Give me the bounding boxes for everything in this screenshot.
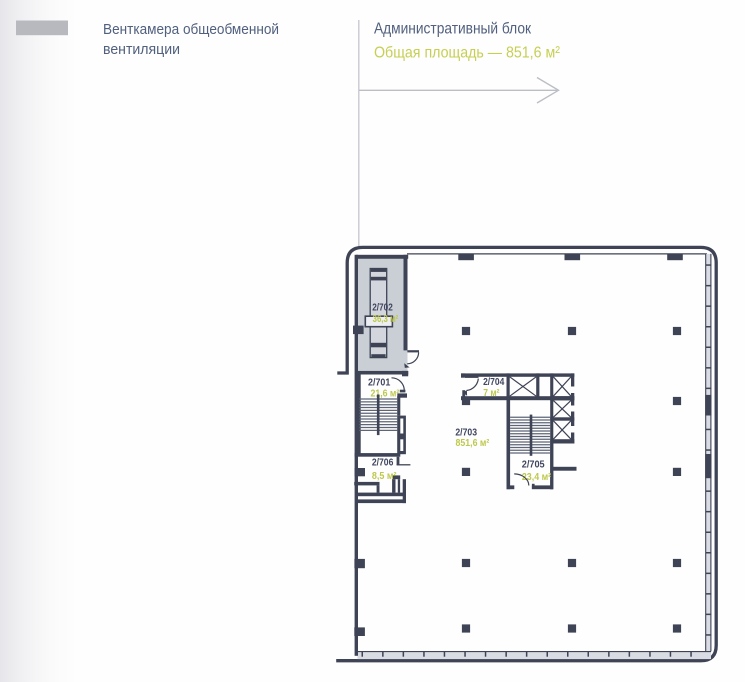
svg-text:21,6 м²: 21,6 м² xyxy=(370,387,399,399)
svg-text:вентиляции: вентиляции xyxy=(103,41,180,58)
svg-text:23,4 м²: 23,4 м² xyxy=(522,471,552,483)
svg-text:851,6 м²: 851,6 м² xyxy=(456,437,490,449)
svg-text:Общая площадь — 851,6 м²: Общая площадь — 851,6 м² xyxy=(374,45,561,62)
svg-text:36,3 м²: 36,3 м² xyxy=(373,313,399,325)
svg-text:8,5 м²: 8,5 м² xyxy=(372,470,397,482)
svg-text:2/706: 2/706 xyxy=(372,457,394,469)
svg-text:Венткамера общеобменной: Венткамера общеобменной xyxy=(103,21,279,38)
svg-text:Административный блок: Административный блок xyxy=(374,21,532,38)
svg-text:2/702: 2/702 xyxy=(372,301,393,313)
svg-text:2/705: 2/705 xyxy=(522,458,545,470)
